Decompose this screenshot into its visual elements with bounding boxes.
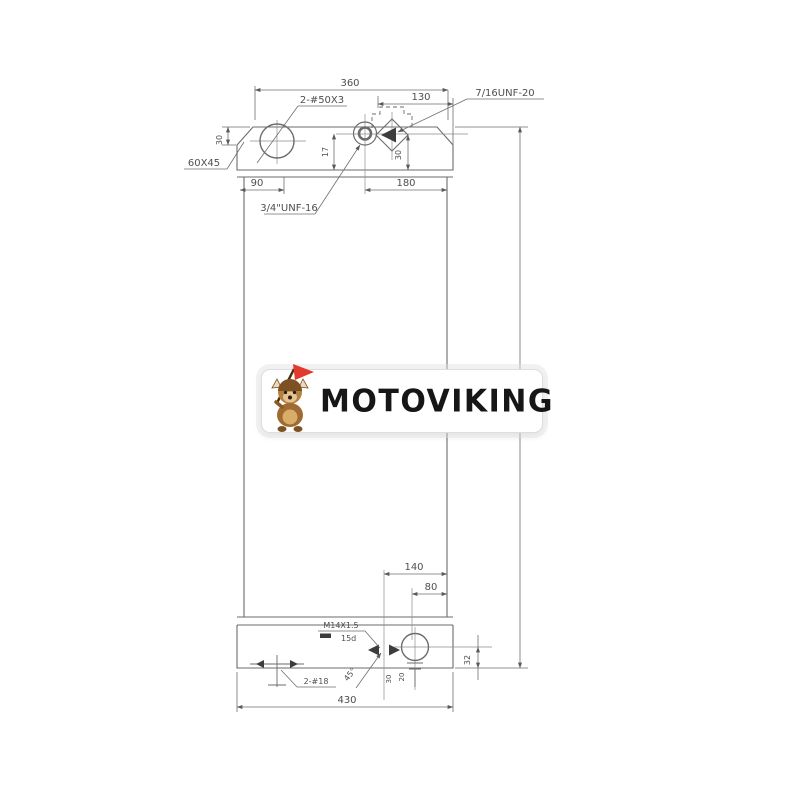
bottom-left-port — [250, 655, 304, 687]
dim-130: 130 — [378, 92, 453, 148]
label-filler-caps: 2-#50X3 — [257, 95, 347, 163]
dim-30-chamfer-text: 30 — [215, 135, 224, 145]
depth-symbol — [320, 634, 331, 639]
label-center-thread: 3/4"UNF-16 — [260, 145, 360, 214]
label-bottom-ports: 2-#18 — [281, 670, 336, 687]
motoviking-logo: MOTOVIKING — [261, 369, 543, 433]
dim-80: 80 — [412, 582, 447, 594]
dim-140: 140 — [384, 562, 447, 574]
logo-wordmark: MOTOVIKING — [262, 383, 554, 420]
dim-32: 32 — [463, 635, 478, 680]
dim-180-text: 180 — [396, 178, 415, 189]
dim-90-text: 90 — [251, 178, 264, 189]
dim-45deg: 45° — [342, 653, 381, 688]
dim-stem-20-text: 20 — [398, 673, 406, 682]
caps-label-text: 2-#50X3 — [300, 95, 344, 106]
bottom-ports-text: 2-#18 — [304, 677, 329, 686]
dim-45deg-text: 45° — [342, 666, 358, 683]
dim-stem-30-text: 30 — [385, 675, 393, 684]
dim-stem-30: 30 — [385, 675, 393, 684]
thread-label-text: 7/16UNF-20 — [475, 88, 534, 99]
dim-30-mid-text: 30 — [394, 150, 403, 160]
chamfer-label-text: 60X45 — [188, 158, 220, 169]
dim-140-text: 140 — [404, 562, 423, 573]
dim-90: 90 — [240, 177, 284, 194]
dim-180: 180 — [365, 178, 447, 190]
dim-32-text: 32 — [463, 655, 472, 665]
dim-17: 17 — [321, 134, 334, 170]
drain-thread-text: M14X1.5 — [323, 621, 358, 630]
dim-stem-20: 20 — [398, 673, 406, 682]
label-chamfer: 60X45 — [184, 142, 244, 169]
dim-30-mid: 30 — [394, 135, 408, 170]
dim-360-text: 360 — [340, 78, 359, 89]
dim-130-text: 130 — [411, 92, 430, 103]
dim-80-text: 80 — [425, 582, 438, 593]
drain-depth-text: 15d — [341, 634, 356, 643]
dim-17-text: 17 — [321, 147, 330, 157]
dim-430-text: 430 — [337, 695, 356, 706]
product-image: 360 130 2-#50X3 7/16UNF-20 60X45 30 — [0, 0, 800, 800]
center-thread-text: 3/4"UNF-16 — [260, 203, 318, 214]
